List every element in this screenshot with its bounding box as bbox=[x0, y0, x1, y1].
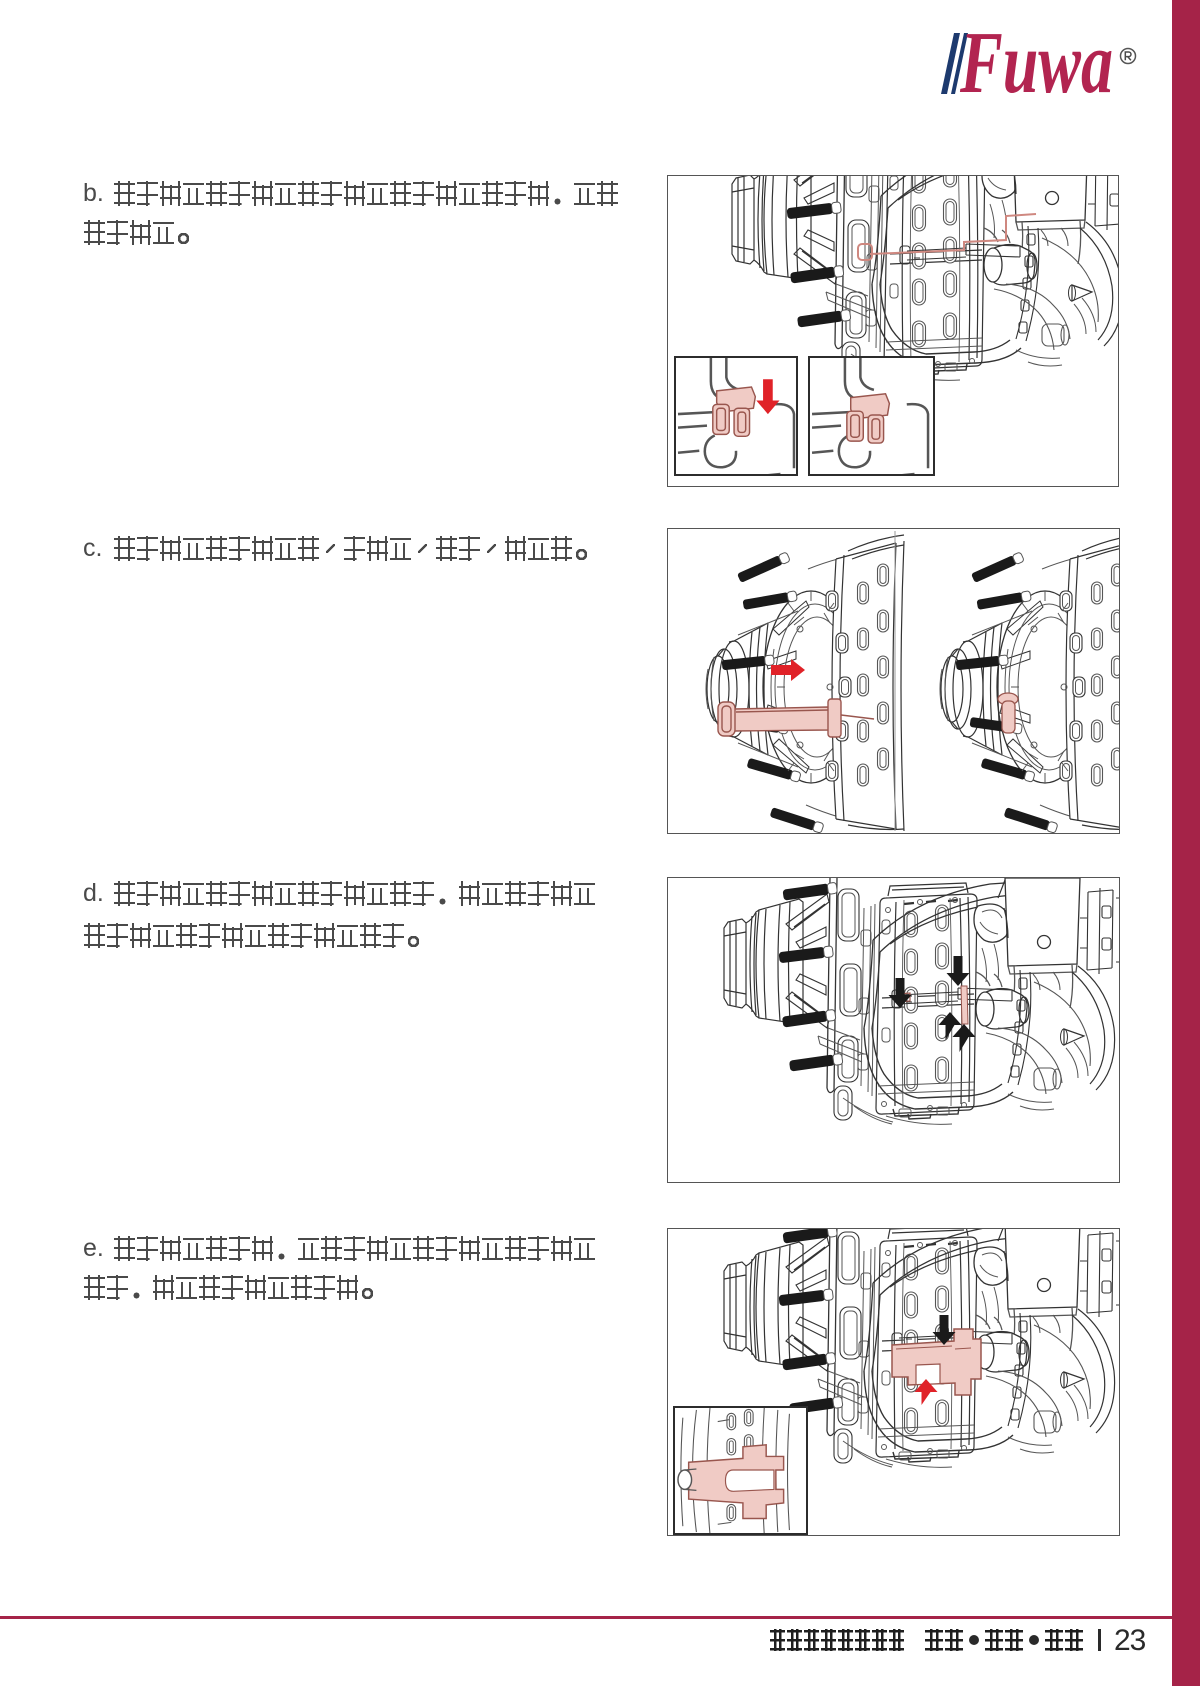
svg-text:Fuwa: Fuwa bbox=[959, 26, 1113, 104]
